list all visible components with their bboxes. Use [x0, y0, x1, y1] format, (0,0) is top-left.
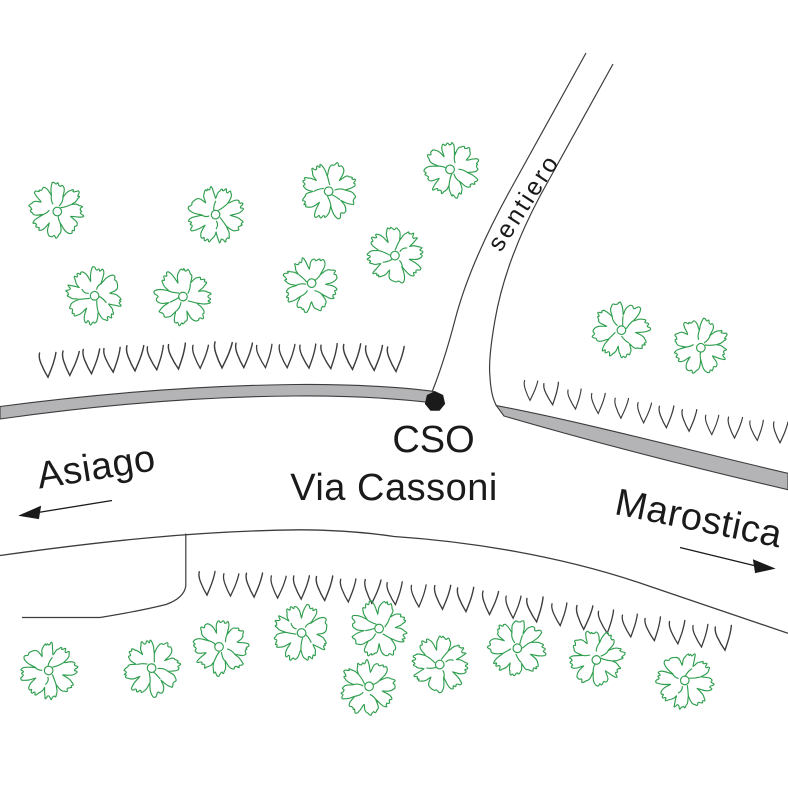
svg-text:CSO: CSO: [392, 419, 474, 461]
svg-text:Via Cassoni: Via Cassoni: [290, 467, 498, 509]
